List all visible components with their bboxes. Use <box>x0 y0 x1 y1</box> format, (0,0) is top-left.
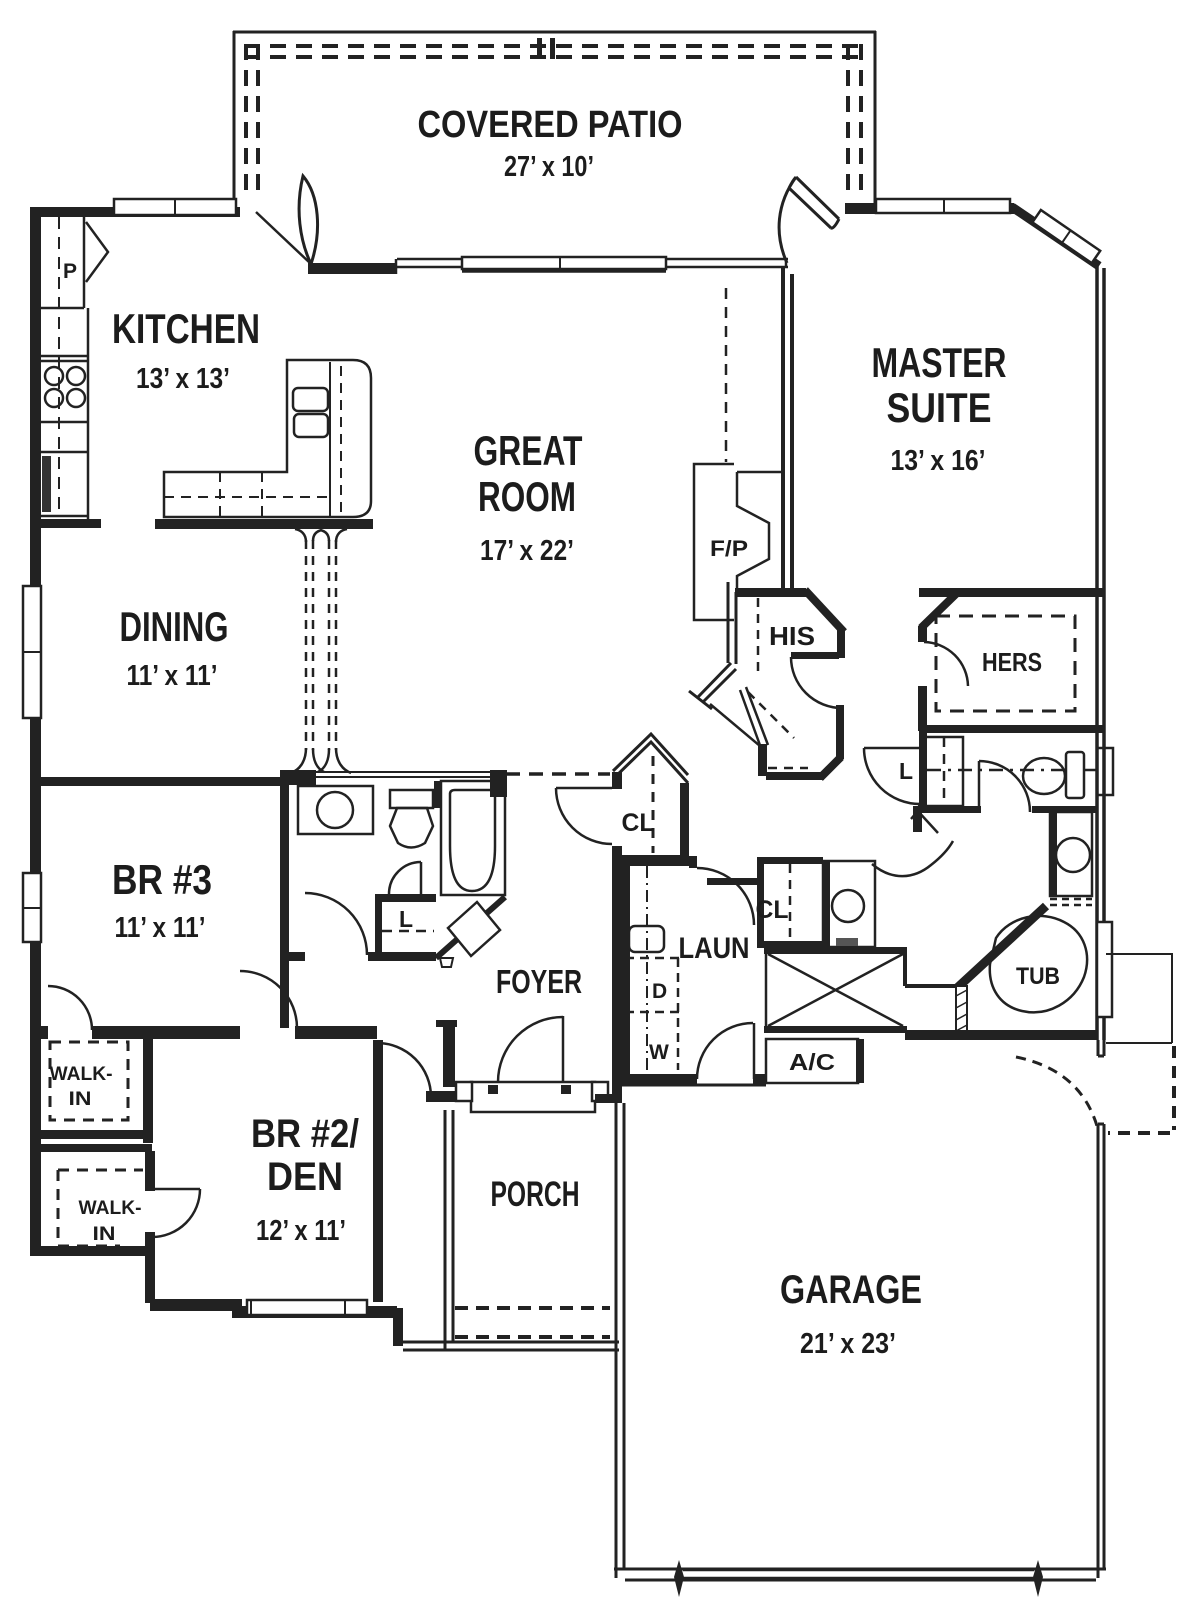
svg-text:FOYER: FOYER <box>496 963 582 1000</box>
svg-text:A/C: A/C <box>789 1049 835 1075</box>
svg-text:IN: IN <box>93 1224 116 1245</box>
svg-text:13’ x 16’: 13’ x 16’ <box>891 445 986 477</box>
svg-text:COVERED PATIO: COVERED PATIO <box>418 104 683 146</box>
svg-text:DINING: DINING <box>120 603 229 650</box>
svg-text:P: P <box>63 260 77 283</box>
svg-text:11’ x 11’: 11’ x 11’ <box>127 660 218 692</box>
svg-text:27’ x 10’: 27’ x 10’ <box>504 151 594 183</box>
svg-text:ROOM: ROOM <box>478 473 576 520</box>
svg-text:21’ x 23’: 21’ x 23’ <box>800 1328 896 1360</box>
svg-text:HIS: HIS <box>769 621 815 651</box>
svg-text:GARAGE: GARAGE <box>780 1268 922 1312</box>
svg-text:L: L <box>399 906 413 932</box>
svg-text:D: D <box>652 980 667 1003</box>
svg-text:WALK-: WALK- <box>79 1198 142 1219</box>
svg-text:GREAT: GREAT <box>474 427 583 474</box>
svg-text:TUB: TUB <box>1016 963 1060 990</box>
svg-text:KITCHEN: KITCHEN <box>112 305 260 352</box>
svg-text:BR #2/: BR #2/ <box>251 1112 359 1156</box>
svg-text:W: W <box>649 1041 669 1064</box>
svg-text:12’ x 11’: 12’ x 11’ <box>256 1215 346 1247</box>
svg-text:WALK-: WALK- <box>50 1064 113 1085</box>
svg-text:SUITE: SUITE <box>887 384 992 431</box>
svg-text:L: L <box>899 758 913 784</box>
svg-text:LAUN: LAUN <box>679 932 750 965</box>
svg-text:CL: CL <box>756 896 789 924</box>
svg-text:MASTER: MASTER <box>872 339 1007 386</box>
svg-text:HERS: HERS <box>982 647 1042 677</box>
svg-text:11’ x 11’: 11’ x 11’ <box>115 912 206 944</box>
svg-text:CL: CL <box>622 809 655 837</box>
svg-text:13’ x 13’: 13’ x 13’ <box>136 363 230 395</box>
svg-text:17’ x 22’: 17’ x 22’ <box>480 535 574 567</box>
svg-text:IN: IN <box>69 1089 92 1110</box>
svg-text:DEN: DEN <box>267 1155 343 1199</box>
svg-text:BR #3: BR #3 <box>112 856 212 903</box>
svg-text:PORCH: PORCH <box>491 1175 580 1214</box>
svg-text:F/P: F/P <box>710 536 748 561</box>
